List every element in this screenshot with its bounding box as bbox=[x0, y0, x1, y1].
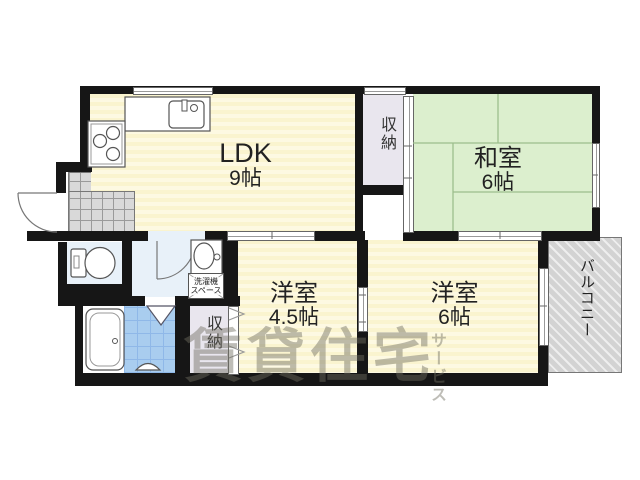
balcony-label: バルコニー bbox=[576, 258, 597, 338]
wall bbox=[355, 185, 403, 195]
watermark-subtext: サービス bbox=[428, 332, 444, 404]
window bbox=[592, 143, 600, 208]
wall bbox=[132, 296, 145, 306]
fusuma-sliding-door bbox=[403, 96, 414, 233]
wall bbox=[75, 306, 83, 373]
washroom-doorway bbox=[148, 231, 205, 241]
laundry-space-box: 洗濯機 スペース bbox=[188, 273, 224, 299]
window bbox=[133, 87, 213, 95]
room-name: 洋室 bbox=[407, 281, 502, 307]
room-name: 和室 bbox=[453, 146, 543, 172]
wall bbox=[222, 240, 238, 306]
room-size: 9帖 bbox=[198, 168, 293, 191]
room-label-bedroom-small: 洋室 4.5帖 bbox=[245, 281, 343, 330]
entrance-door-icon bbox=[18, 193, 57, 232]
window bbox=[364, 87, 406, 95]
wall bbox=[56, 162, 92, 172]
watermark-text: 賃貸住宅 bbox=[184, 328, 436, 386]
laundry-label-line2: スペース bbox=[190, 286, 221, 295]
entrance-tile-lower bbox=[68, 191, 135, 233]
room-size: 6帖 bbox=[453, 172, 543, 195]
wall bbox=[58, 242, 67, 284]
wall bbox=[80, 86, 90, 170]
storage-upper-label: 収納 bbox=[374, 116, 398, 152]
room-label-ldk: LDK 9帖 bbox=[198, 139, 293, 191]
balcony-window bbox=[539, 268, 549, 346]
wall bbox=[58, 284, 132, 306]
window bbox=[458, 231, 542, 241]
room-label-washitsu: 和室 6帖 bbox=[453, 146, 543, 195]
wall bbox=[355, 94, 363, 240]
room-name: 洋室 bbox=[245, 281, 343, 307]
room-name: LDK bbox=[198, 139, 293, 168]
floor-plan: LDK 9帖 和室 6帖 洋室 4.5帖 洋室 6帖 収納 収納 バルコニー 洗… bbox=[0, 0, 640, 480]
bathtub-area-floor bbox=[83, 306, 124, 373]
room-label-bedroom-large: 洋室 6帖 bbox=[407, 281, 502, 330]
laundry-label-line1: 洗濯機 bbox=[194, 277, 218, 286]
sliding-door bbox=[227, 231, 315, 241]
toilet-room-floor bbox=[67, 242, 122, 284]
bathroom-tile-floor bbox=[124, 306, 175, 373]
entrance-tile-upper bbox=[68, 172, 91, 193]
wall bbox=[56, 172, 66, 193]
